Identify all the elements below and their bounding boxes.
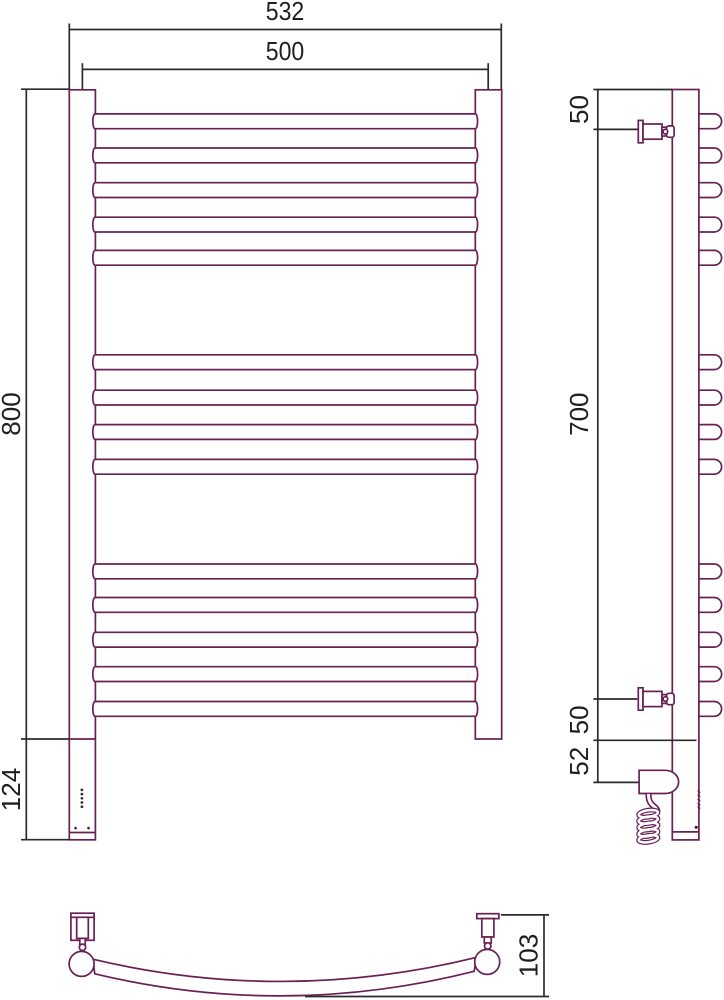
svg-text:700: 700 bbox=[564, 393, 594, 436]
svg-text:50: 50 bbox=[564, 95, 594, 124]
svg-text:52: 52 bbox=[564, 747, 594, 776]
svg-text:50: 50 bbox=[564, 705, 594, 734]
svg-text:532: 532 bbox=[266, 0, 305, 26]
svg-text:124: 124 bbox=[0, 768, 26, 811]
svg-text:800: 800 bbox=[0, 392, 26, 435]
svg-text:103: 103 bbox=[514, 934, 544, 977]
svg-text:500: 500 bbox=[266, 36, 305, 66]
